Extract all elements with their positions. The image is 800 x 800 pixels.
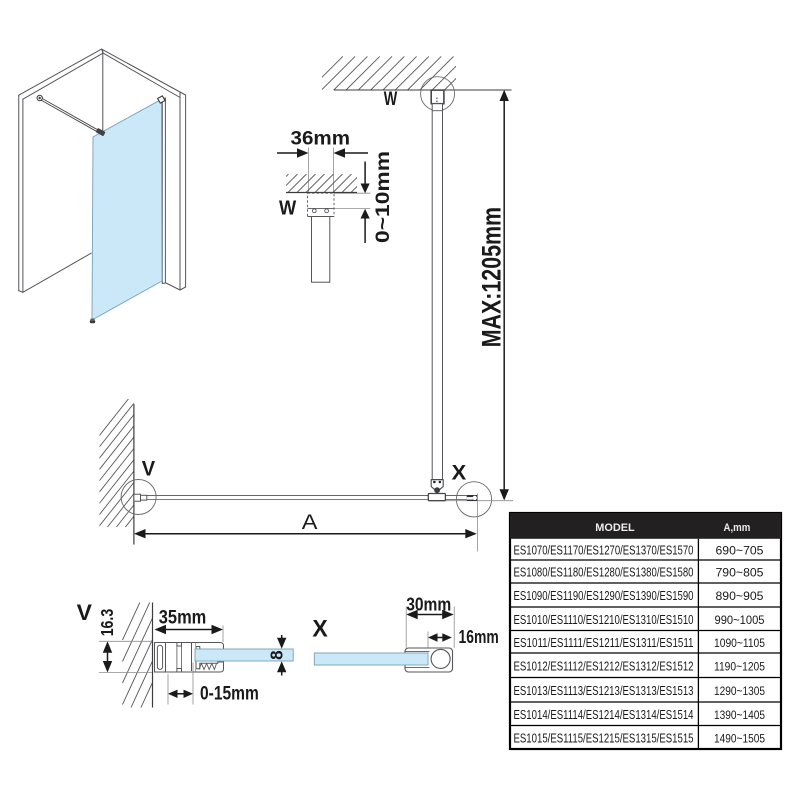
svg-text:16.3: 16.3 bbox=[97, 609, 117, 637]
svg-text:0~10mm: 0~10mm bbox=[373, 151, 394, 243]
svg-text:1190~1205: 1190~1205 bbox=[714, 659, 765, 673]
svg-text:ES1015/ES1115/ES1215/ES1315/ES: ES1015/ES1115/ES1215/ES1315/ES1515 bbox=[514, 731, 694, 745]
svg-text:0-15mm: 0-15mm bbox=[200, 684, 259, 705]
svg-text:1390~1405: 1390~1405 bbox=[714, 708, 765, 722]
svg-text:ES1070/ES1170/ES1270/ES1370/ES: ES1070/ES1170/ES1270/ES1370/ES1570 bbox=[514, 543, 694, 557]
svg-text:ES1014/ES1114/ES1214/ES1314/ES: ES1014/ES1114/ES1214/ES1314/ES1514 bbox=[514, 708, 694, 722]
svg-text:ES1013/ES1113/ES1213/ES1313/ES: ES1013/ES1113/ES1213/ES1313/ES1513 bbox=[514, 684, 694, 698]
svg-text:1090~1105: 1090~1105 bbox=[714, 636, 765, 650]
svg-text:ES1090/ES1190/ES1290/ES1390/ES: ES1090/ES1190/ES1290/ES1390/ES1590 bbox=[514, 589, 694, 603]
svg-text:ES1080/ES1180/ES1280/ES1380/ES: ES1080/ES1180/ES1280/ES1380/ES1580 bbox=[514, 566, 694, 580]
svg-text:1490~1505: 1490~1505 bbox=[714, 731, 765, 745]
svg-text:8: 8 bbox=[267, 650, 287, 660]
svg-text:890~905: 890~905 bbox=[716, 589, 764, 603]
svg-text:A,mm: A,mm bbox=[724, 522, 751, 534]
svg-text:690~705: 690~705 bbox=[716, 543, 764, 557]
svg-text:1290~1305: 1290~1305 bbox=[714, 684, 765, 698]
svg-text:ES1011/ES1111/ES1211/ES1311/ES: ES1011/ES1111/ES1211/ES1311/ES1511 bbox=[514, 636, 694, 650]
svg-text:990~1005: 990~1005 bbox=[715, 613, 765, 627]
svg-text:MAX:1205mm: MAX:1205mm bbox=[476, 207, 506, 347]
svg-text:16mm: 16mm bbox=[459, 626, 499, 647]
svg-text:V: V bbox=[77, 600, 92, 625]
svg-text:W: W bbox=[384, 89, 398, 110]
svg-text:ES1012/ES1112/ES1212/ES1312/ES: ES1012/ES1112/ES1212/ES1312/ES1512 bbox=[514, 659, 694, 673]
svg-text:36mm: 36mm bbox=[291, 129, 351, 150]
svg-text:V: V bbox=[142, 456, 156, 480]
svg-text:ES1010/ES1110/ES1210/ES1310/ES: ES1010/ES1110/ES1210/ES1310/ES1510 bbox=[514, 613, 694, 627]
svg-text:A: A bbox=[302, 511, 319, 534]
svg-text:MODEL: MODEL bbox=[595, 522, 635, 534]
svg-text:790~805: 790~805 bbox=[716, 566, 764, 580]
svg-text:W: W bbox=[279, 197, 296, 219]
svg-text:X: X bbox=[452, 462, 467, 485]
svg-text:X: X bbox=[312, 615, 328, 642]
